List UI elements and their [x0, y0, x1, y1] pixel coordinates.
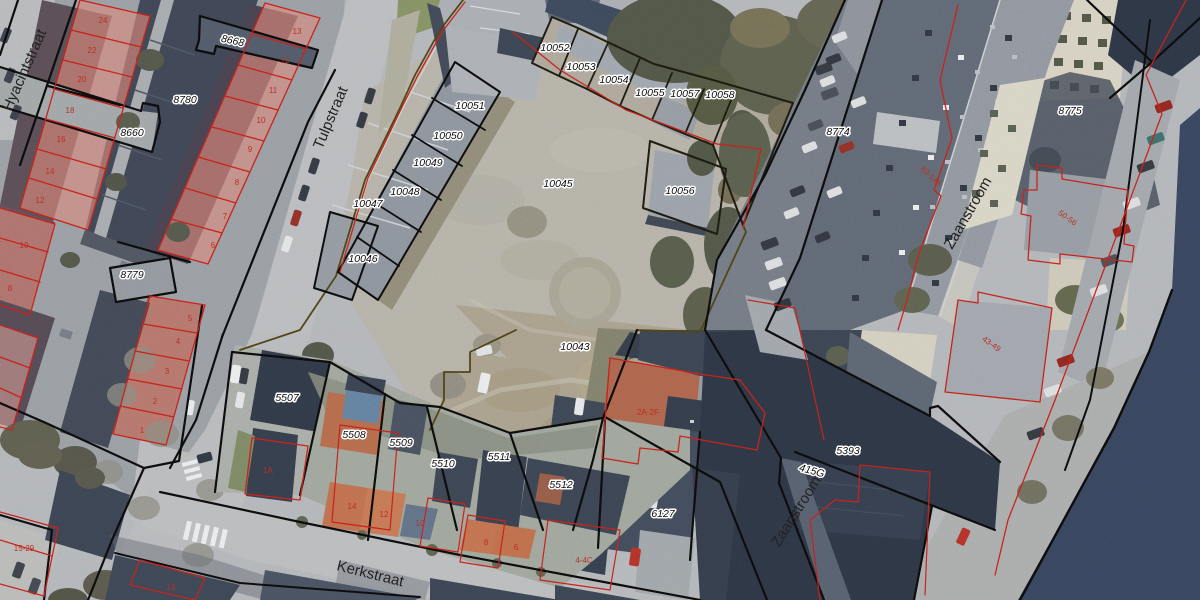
- svg-text:8779: 8779: [120, 269, 144, 281]
- svg-text:10051: 10051: [455, 100, 484, 112]
- svg-text:15-29: 15-29: [14, 544, 35, 553]
- svg-text:6: 6: [211, 241, 216, 250]
- svg-text:8780: 8780: [173, 94, 197, 106]
- svg-text:12: 12: [36, 196, 45, 205]
- svg-text:14: 14: [46, 167, 55, 176]
- svg-text:10057: 10057: [670, 88, 700, 100]
- svg-text:9: 9: [248, 145, 253, 154]
- svg-text:8775: 8775: [1058, 105, 1082, 117]
- svg-text:5509: 5509: [389, 437, 413, 449]
- svg-text:2: 2: [153, 397, 158, 406]
- svg-text:5511: 5511: [488, 451, 511, 463]
- svg-text:10052: 10052: [540, 42, 569, 54]
- svg-text:7: 7: [223, 212, 228, 221]
- svg-text:10: 10: [257, 116, 266, 125]
- svg-text:1: 1: [140, 426, 145, 435]
- svg-text:3: 3: [165, 367, 170, 376]
- svg-text:1A: 1A: [263, 466, 273, 475]
- svg-text:10: 10: [20, 241, 29, 250]
- svg-text:5512: 5512: [549, 479, 573, 491]
- svg-text:10048: 10048: [390, 186, 419, 198]
- svg-text:10045: 10045: [543, 178, 572, 190]
- svg-text:10055: 10055: [635, 87, 664, 99]
- svg-text:5508: 5508: [342, 429, 366, 441]
- svg-text:8774: 8774: [826, 126, 850, 138]
- svg-text:5393: 5393: [836, 445, 860, 457]
- svg-text:22: 22: [88, 46, 97, 55]
- svg-text:4: 4: [176, 337, 181, 346]
- svg-text:12: 12: [380, 510, 389, 519]
- svg-text:10049: 10049: [413, 157, 442, 169]
- svg-text:10053: 10053: [566, 61, 595, 73]
- svg-text:20: 20: [78, 75, 87, 84]
- svg-text:6127: 6127: [651, 508, 676, 520]
- svg-text:10: 10: [416, 519, 425, 528]
- svg-text:12: 12: [281, 56, 290, 65]
- svg-text:10043: 10043: [560, 341, 589, 353]
- svg-text:14: 14: [348, 502, 357, 511]
- svg-text:10050: 10050: [433, 130, 462, 142]
- svg-text:6: 6: [514, 543, 519, 552]
- svg-text:8: 8: [235, 178, 240, 187]
- svg-text:13: 13: [167, 583, 176, 592]
- svg-text:11: 11: [269, 86, 278, 95]
- svg-text:24: 24: [99, 16, 108, 25]
- svg-text:18: 18: [66, 106, 75, 115]
- svg-text:5510: 5510: [431, 458, 455, 470]
- svg-text:16: 16: [57, 135, 66, 144]
- svg-text:4-4C: 4-4C: [575, 556, 593, 565]
- svg-text:8660: 8660: [120, 127, 144, 139]
- svg-text:10054: 10054: [599, 74, 628, 86]
- svg-text:2A-2F: 2A-2F: [637, 408, 659, 417]
- svg-text:10046: 10046: [348, 253, 377, 265]
- svg-text:5507: 5507: [275, 392, 300, 404]
- svg-text:10058: 10058: [705, 89, 734, 101]
- svg-text:8: 8: [8, 284, 13, 293]
- svg-text:13: 13: [293, 27, 302, 36]
- svg-text:5: 5: [188, 314, 193, 323]
- svg-text:10056: 10056: [665, 185, 694, 197]
- svg-text:8: 8: [484, 538, 489, 547]
- svg-text:10047: 10047: [353, 198, 383, 210]
